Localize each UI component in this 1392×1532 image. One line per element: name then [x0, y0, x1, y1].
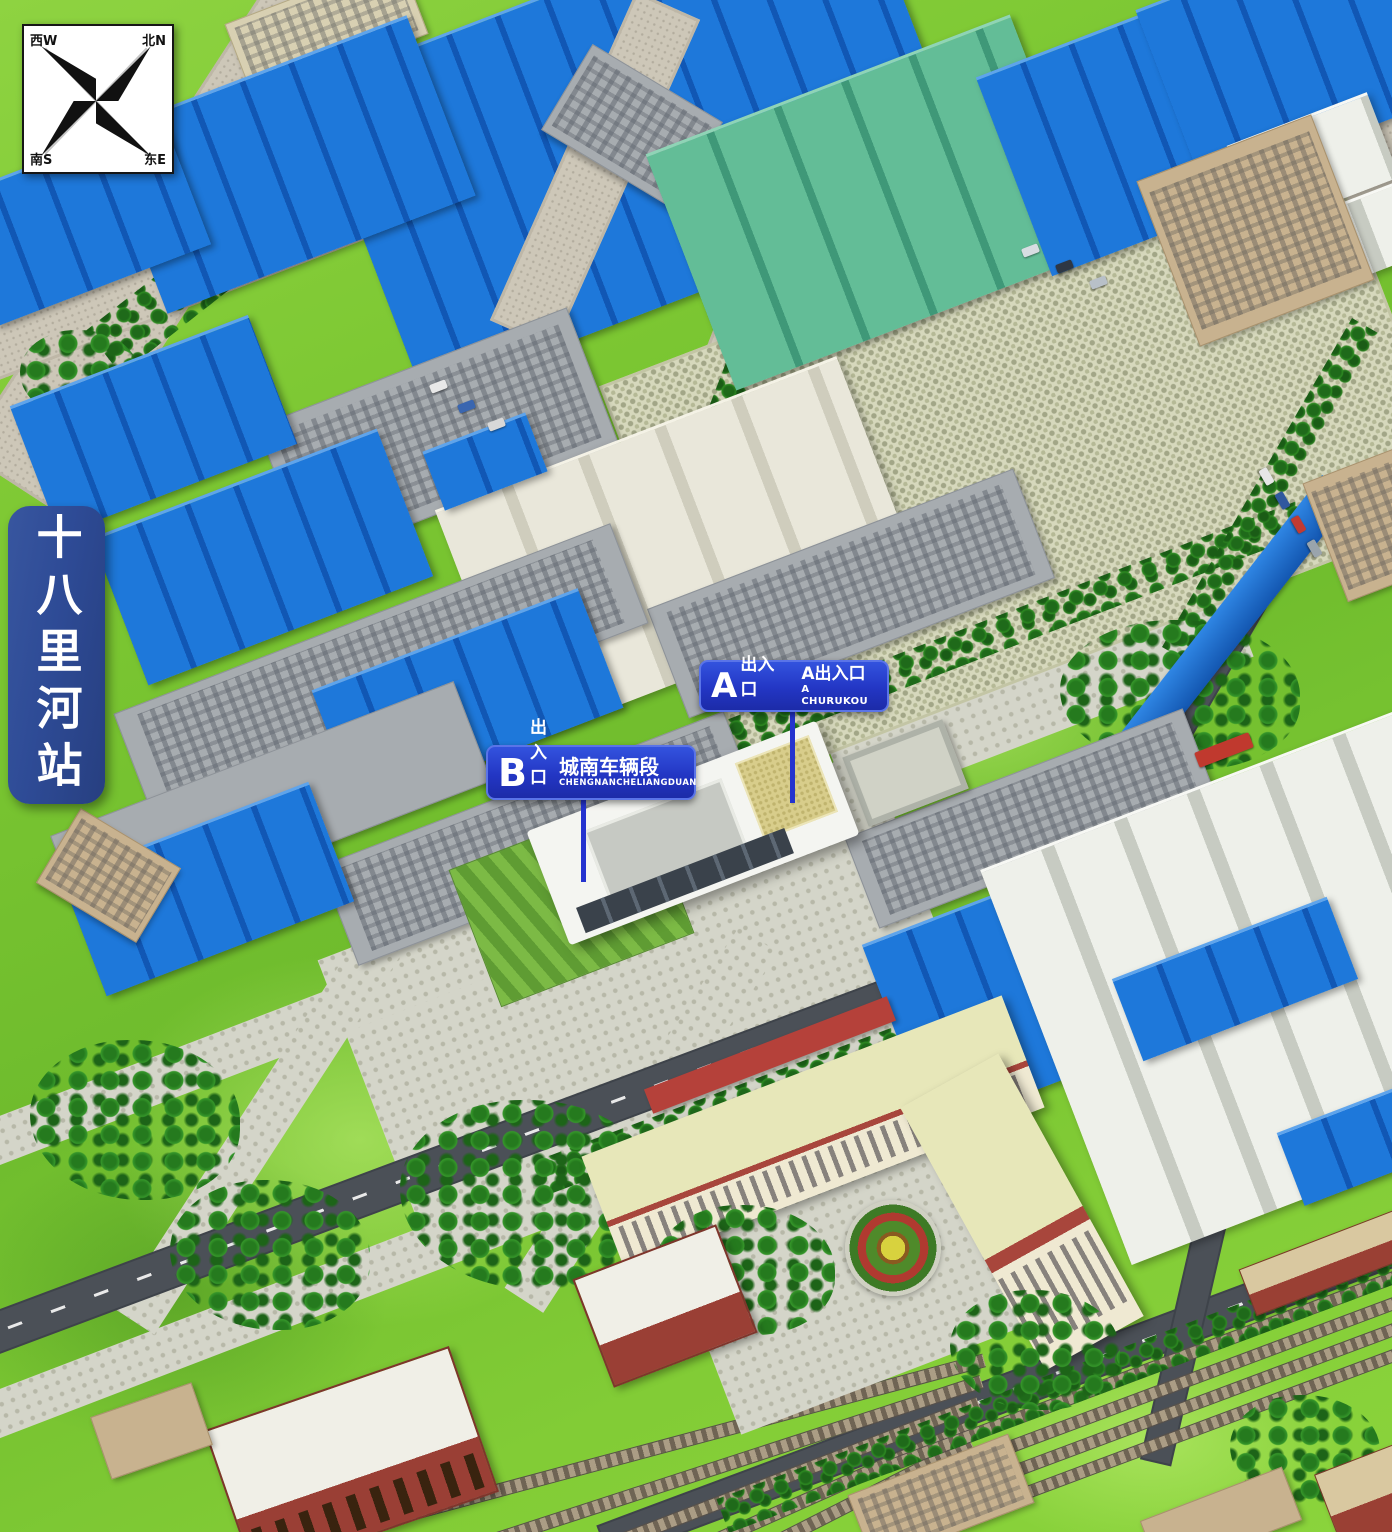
entrance-b-name-en: CHENGNANCHELIANGDUAN — [559, 779, 697, 789]
flower-bed-roundabout — [845, 1200, 941, 1296]
entrance-a-name-cn: A出入口 — [801, 665, 877, 685]
entrance-b-label: B 出入口 城南车辆段 CHENGNANCHELIANGDUAN — [486, 745, 696, 800]
compass-north-label: 北N — [142, 30, 166, 49]
windows — [1311, 461, 1392, 590]
compass-east-label: 东E — [144, 149, 166, 168]
compass-west-label: 西W — [30, 30, 57, 49]
compass-rose: 西W 北N 南S 东E — [22, 24, 174, 174]
station-roof-garden — [735, 735, 838, 840]
entrance-b-word: 出入口 — [530, 713, 547, 788]
leader-line-entrance-a — [790, 708, 795, 803]
depot-doors — [251, 1453, 485, 1532]
entrance-a-name-en: A CHURUKOU — [801, 684, 877, 707]
entrance-a-letter: A — [711, 669, 737, 703]
station-name: 十八里河站 — [34, 513, 80, 798]
compass-south-label: 南S — [30, 149, 52, 168]
entrance-b-name-cn: 城南车辆段 — [559, 756, 697, 779]
station-area-3d-map: A 出入口 A出入口 A CHURUKOU B 出入口 城南车辆段 CHENGN… — [0, 0, 1392, 1532]
entrance-a-word: 出入口 — [740, 650, 789, 700]
entrance-b-letter: B — [498, 754, 527, 792]
entrance-a-label: A 出入口 A出入口 A CHURUKOU — [699, 660, 889, 712]
station-name-banner: 十八里河站 — [8, 506, 105, 804]
leader-line-entrance-b — [581, 796, 586, 882]
